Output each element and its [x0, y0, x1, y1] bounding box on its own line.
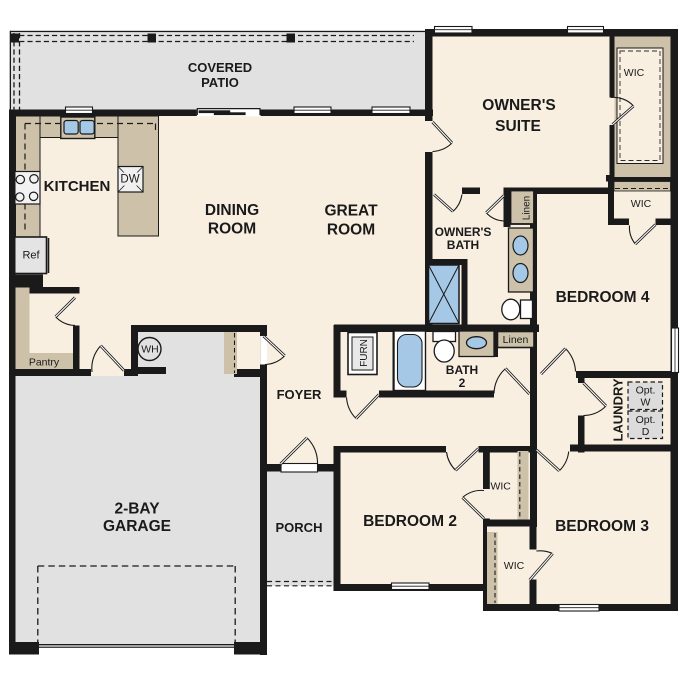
svg-text:2: 2	[459, 376, 466, 390]
svg-text:W: W	[641, 397, 651, 409]
svg-text:ROOM: ROOM	[327, 222, 375, 239]
svg-text:BEDROOM 3: BEDROOM 3	[555, 518, 649, 535]
svg-text:COVERED: COVERED	[188, 60, 252, 75]
svg-text:WIC: WIC	[631, 198, 652, 210]
svg-text:D: D	[642, 426, 650, 438]
svg-text:2-BAY: 2-BAY	[114, 501, 160, 518]
svg-text:WIC: WIC	[504, 560, 525, 572]
svg-text:BATH: BATH	[446, 363, 478, 377]
svg-text:Opt.: Opt.	[636, 414, 656, 426]
svg-text:Pantry: Pantry	[29, 357, 60, 369]
svg-text:Linen: Linen	[522, 196, 533, 220]
svg-text:GREAT: GREAT	[324, 203, 378, 220]
svg-text:FURN: FURN	[359, 339, 370, 367]
svg-text:WIC: WIC	[624, 67, 645, 79]
svg-text:OWNER'S: OWNER'S	[435, 225, 492, 239]
svg-text:BEDROOM 2: BEDROOM 2	[363, 513, 457, 530]
svg-text:BATH: BATH	[447, 238, 479, 252]
svg-text:OWNER'S: OWNER'S	[482, 97, 555, 114]
svg-text:Linen: Linen	[503, 334, 529, 346]
svg-text:WH: WH	[141, 344, 159, 356]
svg-text:WIC: WIC	[490, 481, 511, 493]
svg-text:DINING: DINING	[205, 202, 259, 219]
svg-text:GARAGE: GARAGE	[103, 518, 171, 535]
svg-text:PATIO: PATIO	[201, 75, 239, 90]
svg-text:PORCH: PORCH	[276, 520, 323, 535]
svg-text:KITCHEN: KITCHEN	[44, 178, 111, 195]
svg-text:LAUNDRY: LAUNDRY	[611, 378, 626, 441]
svg-text:Opt.: Opt.	[636, 385, 656, 397]
svg-text:DW: DW	[120, 174, 139, 186]
svg-text:Ref: Ref	[22, 250, 40, 262]
svg-text:SUITE: SUITE	[495, 118, 541, 135]
svg-text:FOYER: FOYER	[277, 387, 322, 402]
svg-text:BEDROOM 4: BEDROOM 4	[556, 289, 650, 306]
svg-text:ROOM: ROOM	[208, 221, 256, 238]
